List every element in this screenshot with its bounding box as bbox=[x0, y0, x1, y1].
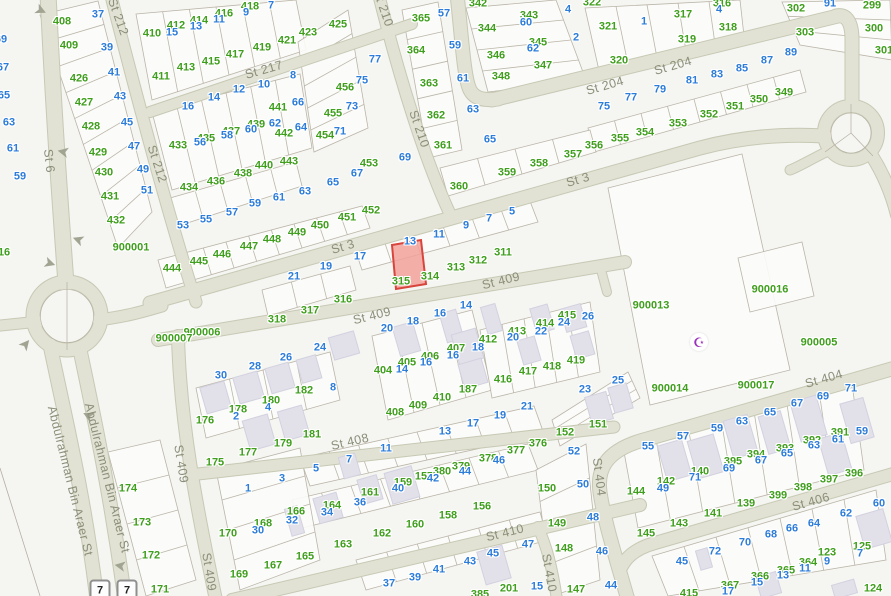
house-number-label: 8 bbox=[330, 383, 336, 394]
parcel-number-label: 432 bbox=[107, 216, 125, 227]
parcel-number-label: 174 bbox=[119, 484, 137, 495]
house-number-label: 30 bbox=[215, 371, 227, 382]
parcel-number-label: 172 bbox=[142, 551, 160, 562]
parcel-number-label: 150 bbox=[538, 484, 556, 495]
parcel-number-label: 301 bbox=[875, 46, 891, 57]
house-number-label: 63 bbox=[736, 417, 748, 428]
house-number-label: 67 bbox=[791, 399, 803, 410]
house-number-label: 50 bbox=[577, 480, 589, 491]
house-number-label: 34 bbox=[321, 508, 333, 519]
house-number-label: 68 bbox=[765, 530, 777, 541]
map-canvas[interactable]: St 212St 212St 210St 210St 6St 217St 204… bbox=[0, 0, 891, 596]
parcel-number-label: 445 bbox=[190, 257, 208, 268]
house-number-label: 61 bbox=[832, 435, 844, 446]
parcel-number-label: 396 bbox=[845, 469, 863, 480]
parcel-number-label: 318 bbox=[719, 23, 737, 34]
house-number-label: 48 bbox=[587, 513, 599, 524]
house-number-label: 20 bbox=[381, 324, 393, 335]
parcel-number-label: 404 bbox=[374, 366, 392, 377]
house-number-label: 4 bbox=[716, 5, 722, 16]
parcel-number-label: 397 bbox=[820, 475, 838, 486]
house-number-label: 19 bbox=[320, 262, 332, 273]
parcel-number-label: 151 bbox=[589, 420, 607, 431]
house-number-label: 47 bbox=[522, 540, 534, 551]
house-number-label: 4 bbox=[565, 5, 571, 16]
parcel-number-label: 201 bbox=[500, 584, 518, 595]
house-number-label: 30 bbox=[252, 526, 264, 537]
parcel-number-label: 147 bbox=[567, 585, 585, 596]
parcel-number-label: 342 bbox=[469, 0, 487, 10]
street-name-label: St 406 bbox=[791, 491, 831, 514]
parcel-number-label: 415 bbox=[202, 57, 220, 68]
parcel-number-label: 319 bbox=[678, 35, 696, 46]
parcel-number-label: 415 bbox=[680, 589, 698, 596]
parcel-number-label: 148 bbox=[555, 544, 573, 555]
parcel-number-label: 141 bbox=[704, 509, 722, 520]
house-number-label: 59 bbox=[711, 424, 723, 435]
house-number-label: 46 bbox=[596, 547, 608, 558]
house-number-label: 15 bbox=[751, 578, 763, 589]
street-name-label: St 3 bbox=[565, 171, 591, 190]
parcel-number-label: 167 bbox=[264, 561, 282, 572]
house-number-label: 63 bbox=[808, 441, 820, 452]
parcel-number-label: 179 bbox=[274, 439, 292, 450]
house-number-label: 28 bbox=[249, 362, 261, 373]
route-shield-number: 7 bbox=[97, 584, 103, 596]
parcel-number-label: 358 bbox=[530, 159, 548, 170]
house-number-label: 16 bbox=[434, 309, 446, 320]
parcel-number-label: 436 bbox=[207, 177, 225, 188]
house-number-label: 67 bbox=[351, 169, 363, 180]
house-number-label: 75 bbox=[598, 102, 610, 113]
house-number-label: 14 bbox=[208, 93, 220, 104]
house-number-label: 72 bbox=[709, 547, 721, 558]
parcel-number-label: 303 bbox=[796, 28, 814, 39]
route-shield-number: 7 bbox=[124, 584, 130, 596]
parcel-number-label: 314 bbox=[421, 272, 439, 283]
house-number-label: 71 bbox=[845, 384, 857, 395]
parcel-number-label: 441 bbox=[269, 103, 287, 114]
parcel-number-label: 417 bbox=[226, 50, 244, 61]
parcel-number-label: 347 bbox=[534, 61, 552, 72]
house-number-label: 57 bbox=[226, 208, 238, 219]
parcel-number-label: 450 bbox=[311, 221, 329, 232]
house-number-label: 13 bbox=[777, 571, 789, 582]
parcel-number-label: 360 bbox=[450, 182, 468, 193]
house-number-label: 44 bbox=[459, 467, 471, 478]
house-number-label: 8 bbox=[290, 71, 296, 82]
house-number-label: 59 bbox=[449, 41, 461, 52]
house-number-label: 59 bbox=[249, 199, 261, 210]
house-number-label: 11 bbox=[433, 230, 445, 241]
house-number-label: 7 bbox=[486, 214, 492, 225]
house-number-label: 13 bbox=[439, 427, 451, 438]
house-number-label: 43 bbox=[464, 557, 476, 568]
house-number-label: 77 bbox=[625, 93, 637, 104]
house-number-label: 20 bbox=[507, 333, 519, 344]
parcel-number-label: 158 bbox=[439, 511, 457, 522]
house-number-label: 69 bbox=[817, 392, 829, 403]
house-number-label: 56 bbox=[194, 138, 206, 149]
house-number-label: 65 bbox=[484, 135, 496, 146]
house-number-label: 5 bbox=[313, 464, 319, 475]
house-number-label: 63 bbox=[3, 118, 15, 129]
house-number-label: 45 bbox=[487, 549, 499, 560]
street-name-label: St 409 bbox=[200, 552, 218, 592]
house-number-label: 32 bbox=[286, 516, 298, 527]
house-number-label: 75 bbox=[356, 76, 368, 87]
house-number-label: 21 bbox=[521, 402, 533, 413]
parcel-number-label: 181 bbox=[303, 430, 321, 441]
parcel-number-label: 413 bbox=[177, 63, 195, 74]
parcel-number-label: 416 bbox=[494, 375, 512, 386]
house-number-label: 85 bbox=[736, 64, 748, 75]
parcel-number-label: 317 bbox=[301, 306, 319, 317]
house-number-label: 9 bbox=[463, 221, 469, 232]
parcel-number-label: 434 bbox=[180, 183, 198, 194]
house-number-label: 17 bbox=[467, 419, 479, 430]
house-number-label: 65 bbox=[327, 178, 339, 189]
house-number-label: 18 bbox=[407, 317, 419, 328]
parcel-number-label: 171 bbox=[151, 585, 169, 596]
house-number-label: 11 bbox=[213, 15, 225, 26]
house-number-label: 14 bbox=[396, 365, 408, 376]
street-name-label: St 409 bbox=[172, 444, 190, 484]
parcel-number-label: 426 bbox=[70, 74, 88, 85]
parcel-number-label: 427 bbox=[75, 98, 93, 109]
parcel-number-label: 322 bbox=[583, 0, 601, 9]
parcel-number-label: 411 bbox=[152, 72, 170, 83]
house-number-label: 66 bbox=[292, 98, 304, 109]
house-number-label: 45 bbox=[676, 557, 688, 568]
parcel-number-label: 177 bbox=[239, 448, 257, 459]
house-number-label: 18 bbox=[472, 343, 484, 354]
house-number-label: 64 bbox=[295, 123, 307, 134]
parcel-number-label: 364 bbox=[407, 46, 425, 57]
house-number-label: 69 bbox=[399, 153, 411, 164]
house-number-label: 55 bbox=[642, 442, 654, 453]
house-number-label: 37 bbox=[383, 579, 395, 590]
parcel-number-label: 365 bbox=[412, 14, 430, 25]
house-number-label: 53 bbox=[177, 221, 189, 232]
house-number-label: 17 bbox=[722, 587, 734, 596]
parcel-number-label: 351 bbox=[726, 102, 744, 113]
parcel-number-label: 187 bbox=[459, 385, 477, 396]
house-number-label: 60 bbox=[520, 18, 532, 29]
house-number-label: 65 bbox=[0, 91, 10, 102]
parcel-number-label: 316 bbox=[334, 295, 352, 306]
house-number-label: 14 bbox=[460, 301, 472, 312]
parcel-number-label: 175 bbox=[206, 458, 224, 469]
parcel-number-label: 346 bbox=[487, 51, 505, 62]
parcel-number-label: 318 bbox=[268, 315, 286, 326]
house-number-label: 59 bbox=[856, 427, 868, 438]
parcel-number-label: 170 bbox=[219, 529, 237, 540]
parcel-number-label: 410 bbox=[433, 393, 451, 404]
parcel-number-label: 900014 bbox=[652, 384, 689, 395]
house-number-label: 87 bbox=[761, 56, 773, 67]
house-number-label: 55 bbox=[200, 215, 212, 226]
house-number-label: 16 bbox=[447, 351, 459, 362]
house-number-label: 57 bbox=[677, 432, 689, 443]
house-number-label: 24 bbox=[558, 318, 570, 329]
house-number-label: 17 bbox=[354, 252, 366, 263]
route-shield: 7 bbox=[117, 580, 138, 596]
parcel-number-label: 363 bbox=[420, 79, 438, 90]
house-number-label: 89 bbox=[785, 48, 797, 59]
parcel-number-label: 376 bbox=[529, 439, 547, 450]
house-number-label: 69 bbox=[0, 35, 7, 46]
house-number-label: 1 bbox=[245, 484, 251, 495]
house-number-label: 58 bbox=[221, 131, 233, 142]
house-number-label: 12 bbox=[233, 85, 245, 96]
house-number-label: 25 bbox=[612, 376, 624, 387]
house-number-label: 13 bbox=[190, 22, 202, 33]
parcel-number-label: 431 bbox=[101, 192, 119, 203]
house-number-label: 22 bbox=[535, 327, 547, 338]
parcel-number-label: 349 bbox=[775, 88, 793, 99]
parcel-number-label: 447 bbox=[240, 242, 258, 253]
parcel-number-label: 165 bbox=[296, 552, 314, 563]
house-number-label: 7 bbox=[268, 1, 274, 12]
parcel-number-label: 320 bbox=[610, 56, 628, 67]
parcel-number-label: 169 bbox=[230, 570, 248, 581]
house-number-label: 65 bbox=[781, 449, 793, 460]
parcel-number-label: 359 bbox=[498, 168, 516, 179]
house-number-label: 81 bbox=[686, 76, 698, 87]
street-name-label: St 3 bbox=[330, 238, 356, 257]
house-number-label: 65 bbox=[764, 408, 776, 419]
parcel-number-label: 321 bbox=[599, 22, 617, 33]
parcel-number-label: 410 bbox=[143, 29, 161, 40]
parcel-number-label: 317 bbox=[674, 10, 692, 21]
parcel-number-label: 160 bbox=[406, 520, 424, 531]
parcel-number-label: 398 bbox=[794, 483, 812, 494]
parcel-number-label: 440 bbox=[255, 161, 273, 172]
parcel-number-label: 302 bbox=[787, 4, 805, 15]
house-number-label: 5 bbox=[509, 207, 515, 218]
parcel-number-label: 312 bbox=[469, 256, 487, 267]
parcel-number-label: 900001 bbox=[113, 243, 150, 254]
house-number-label: 59 bbox=[14, 172, 26, 183]
parcel-number-label: 385 bbox=[471, 590, 489, 596]
house-number-label: 77 bbox=[369, 55, 381, 66]
parcel-number-label: 315 bbox=[392, 277, 410, 288]
street-name-label: St 212 bbox=[106, 0, 131, 37]
house-number-label: 24 bbox=[314, 343, 326, 354]
house-number-label: 91 bbox=[824, 0, 836, 10]
house-number-label: 45 bbox=[121, 118, 133, 129]
house-number-label: 69 bbox=[723, 464, 735, 475]
house-number-label: 11 bbox=[799, 564, 811, 575]
street-name-label: St 408 bbox=[330, 432, 370, 453]
house-number-label: 36 bbox=[354, 498, 366, 509]
parcel-number-label: 144 bbox=[627, 487, 645, 498]
house-number-label: 15 bbox=[531, 582, 543, 593]
house-number-label: 7 bbox=[857, 549, 863, 560]
house-number-label: 19 bbox=[494, 411, 506, 422]
parcel-number-label: 408 bbox=[53, 17, 71, 28]
house-number-label: 40 bbox=[392, 484, 404, 495]
house-number-label: 37 bbox=[92, 10, 104, 21]
house-number-label: 4 bbox=[265, 403, 271, 414]
street-name-label: St 404 bbox=[590, 457, 607, 497]
parcel-number-label: 425 bbox=[329, 20, 347, 31]
parcel-number-label: 442 bbox=[275, 129, 293, 140]
parcel-number-label: 900007 bbox=[156, 334, 193, 345]
house-number-label: 39 bbox=[409, 573, 421, 584]
parcel-number-label: 162 bbox=[373, 529, 391, 540]
parcel-number-label: 429 bbox=[89, 148, 107, 159]
house-number-label: 70 bbox=[739, 538, 751, 549]
house-number-label: 39 bbox=[101, 43, 113, 54]
parcel-number-label: 449 bbox=[288, 228, 306, 239]
house-number-label: 7 bbox=[346, 455, 352, 466]
parcel-number-label: 173 bbox=[133, 518, 151, 529]
parcel-number-label: 355 bbox=[611, 134, 629, 145]
parcel-number-label: 417 bbox=[519, 367, 537, 378]
house-number-label: 10 bbox=[258, 80, 270, 91]
parcel-number-label: 344 bbox=[478, 24, 496, 35]
house-number-label: 51 bbox=[141, 186, 153, 197]
parcel-number-label: 433 bbox=[169, 141, 187, 152]
parcel-number-label: 348 bbox=[492, 72, 510, 83]
house-number-label: 57 bbox=[438, 9, 450, 20]
house-number-label: 49 bbox=[137, 165, 149, 176]
parcel-number-label: 361 bbox=[434, 141, 452, 152]
parcel-number-label: 176 bbox=[196, 416, 214, 427]
parcel-number-label: 156 bbox=[473, 502, 491, 513]
house-number-label: 63 bbox=[467, 105, 479, 116]
parcel-number-label: 430 bbox=[95, 168, 113, 179]
parcel-number-label: 900013 bbox=[633, 301, 670, 312]
parcel-number-label: 409 bbox=[409, 401, 427, 412]
parcel-number-label: 350 bbox=[750, 95, 768, 106]
street-name-label: St 6 bbox=[42, 148, 57, 173]
route-shield: 7 bbox=[90, 580, 111, 596]
parcel-number-label: 352 bbox=[700, 110, 718, 121]
street-name-label: St 409 bbox=[481, 270, 521, 291]
parcel-number-label: 438 bbox=[234, 169, 252, 180]
parcel-number-label: 152 bbox=[556, 428, 574, 439]
house-number-label: 11 bbox=[380, 444, 392, 455]
house-number-label: 2 bbox=[233, 412, 239, 423]
house-number-label: 41 bbox=[108, 68, 120, 79]
parcel-number-label: 357 bbox=[564, 150, 582, 161]
parcel-number-label: 443 bbox=[280, 157, 298, 168]
parcel-number-label: 377 bbox=[507, 446, 525, 457]
parcel-number-label: 454 bbox=[316, 131, 334, 142]
house-number-label: 67 bbox=[755, 456, 767, 467]
house-number-label: 60 bbox=[873, 499, 885, 510]
house-number-label: 21 bbox=[288, 272, 300, 283]
house-number-label: 15 bbox=[166, 28, 178, 39]
mosque-icon: ☪ bbox=[690, 333, 708, 351]
house-number-label: 60 bbox=[245, 125, 257, 136]
house-number-label: 62 bbox=[840, 509, 852, 520]
parcel-number-label: 313 bbox=[447, 263, 465, 274]
parcel-number-label: 409 bbox=[60, 41, 78, 52]
house-number-label: 63 bbox=[299, 187, 311, 198]
parcel-number-label: 182 bbox=[295, 386, 313, 397]
house-number-label: 46 bbox=[493, 456, 505, 467]
parcel-number-label: 149 bbox=[548, 519, 566, 530]
house-number-label: 44 bbox=[605, 581, 617, 592]
parcel-number-label: 419 bbox=[567, 356, 585, 367]
house-number-label: 9 bbox=[243, 8, 249, 19]
house-number-label: 49 bbox=[657, 484, 669, 495]
house-number-label: 23 bbox=[579, 385, 591, 396]
house-number-label: 71 bbox=[334, 127, 346, 138]
house-number-label: 26 bbox=[280, 353, 292, 364]
house-number-label: 16 bbox=[420, 358, 432, 369]
street-name-label: St 204 bbox=[585, 75, 625, 98]
parcel-number-label: 356 bbox=[585, 141, 603, 152]
house-number-label: 62 bbox=[269, 119, 281, 130]
parcel-number-label: 353 bbox=[669, 119, 687, 130]
parcel-number-label: 145 bbox=[637, 529, 655, 540]
parcel-number-label: 446 bbox=[213, 250, 231, 261]
house-number-label: 67 bbox=[0, 63, 9, 74]
parcel-number-label: 900005 bbox=[801, 338, 838, 349]
house-number-label: 42 bbox=[427, 474, 439, 485]
house-number-label: 2 bbox=[573, 33, 579, 44]
parcel-number-label: 354 bbox=[636, 128, 654, 139]
parcel-number-label: 300 bbox=[865, 24, 883, 35]
house-number-label: 43 bbox=[114, 92, 126, 103]
parcel-number-label: 408 bbox=[386, 408, 404, 419]
house-number-label: 61 bbox=[7, 144, 19, 155]
parcel-number-label: 139 bbox=[737, 499, 755, 510]
house-number-label: 9 bbox=[824, 557, 830, 568]
house-number-label: 3 bbox=[279, 474, 285, 485]
parcel-number-label: 451 bbox=[338, 213, 356, 224]
parcel-number-label: 452 bbox=[362, 206, 380, 217]
parcel-number-label: 900017 bbox=[738, 381, 775, 392]
house-number-label: 1 bbox=[641, 17, 647, 28]
parcel-number-label: 421 bbox=[278, 36, 296, 47]
parcel-number-label: 299 bbox=[863, 1, 881, 12]
house-number-label: 47 bbox=[128, 142, 140, 153]
parcel-number-label: 456 bbox=[336, 83, 354, 94]
house-number-label: 71 bbox=[689, 473, 701, 484]
parcel-number-label: 311 bbox=[494, 248, 512, 259]
parcel-number-label: 444 bbox=[163, 264, 181, 275]
house-number-label: 13 bbox=[404, 237, 416, 248]
parcel-number-label: 423 bbox=[299, 28, 317, 39]
house-number-label: 64 bbox=[808, 519, 820, 530]
parcel-number-label: 416 bbox=[0, 248, 10, 259]
parcel-number-label: 143 bbox=[670, 519, 688, 530]
house-number-label: 73 bbox=[346, 102, 358, 113]
house-number-label: 79 bbox=[654, 85, 666, 96]
parcel-number-label: 399 bbox=[769, 491, 787, 502]
house-number-label: 41 bbox=[433, 565, 445, 576]
parcel-number-label: 900016 bbox=[752, 285, 789, 296]
parcel-number-label: 419 bbox=[253, 43, 271, 54]
house-number-label: 52 bbox=[568, 447, 580, 458]
house-number-label: 61 bbox=[457, 74, 469, 85]
house-number-label: 66 bbox=[786, 524, 798, 535]
house-number-label: 61 bbox=[273, 193, 285, 204]
street-name-label: St 410 bbox=[485, 522, 525, 543]
house-number-label: 83 bbox=[711, 70, 723, 81]
street-name-label: St 404 bbox=[804, 368, 844, 391]
parcel-number-label: 448 bbox=[263, 235, 281, 246]
house-number-label: 26 bbox=[582, 312, 594, 323]
parcel-number-label: 428 bbox=[82, 122, 100, 133]
parcel-number-label: 163 bbox=[334, 540, 352, 551]
